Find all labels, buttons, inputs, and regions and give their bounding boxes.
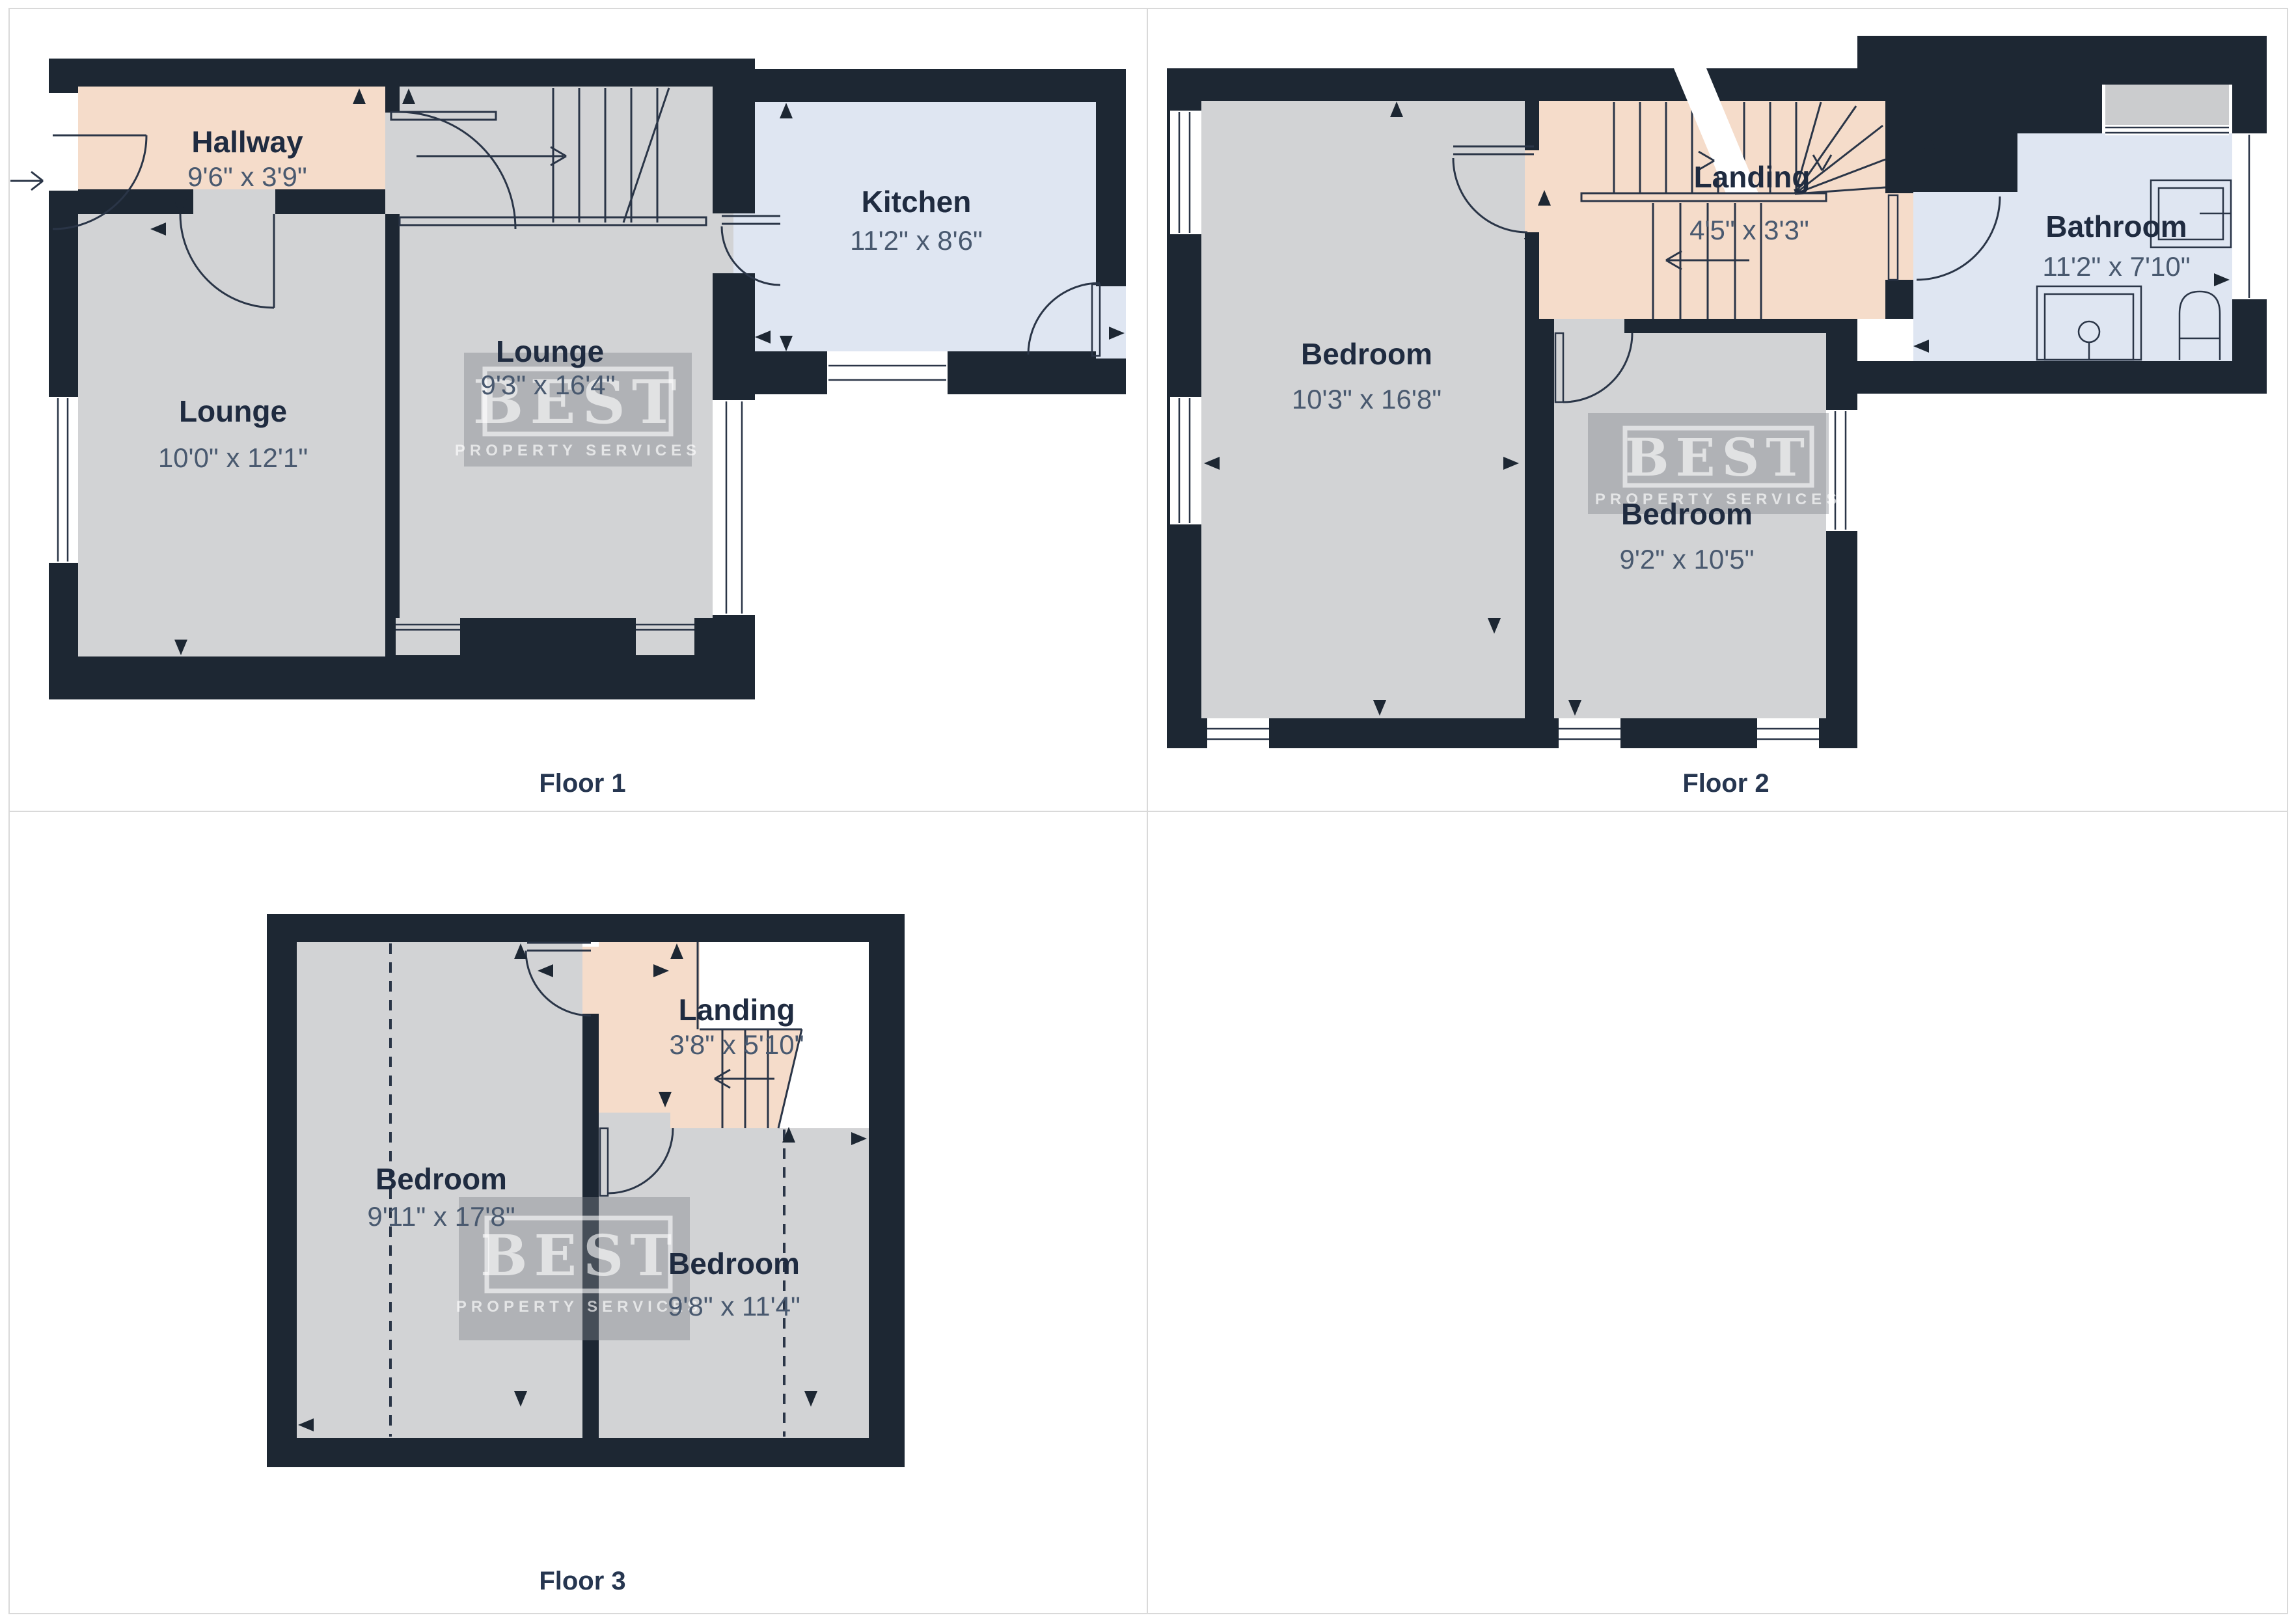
watermark-subtitle: PROPERTY SERVICES [456, 1298, 702, 1316]
room-label: Landing [679, 993, 795, 1027]
watermark-title: BEST [1625, 427, 1811, 488]
bay-window [396, 618, 460, 655]
caption-floor-3: Floor 3 [498, 1567, 667, 1596]
watermark-title: BEST [480, 1223, 678, 1289]
window [1170, 111, 1201, 234]
room-dimensions: 10'0" x 12'1" [158, 442, 308, 473]
room-label: Hallway [191, 125, 303, 159]
room-label: Lounge [496, 334, 604, 368]
caption-floor-1: Floor 1 [498, 769, 667, 798]
window [1757, 718, 1819, 748]
floorplan-floor-1: BEST PROPERTY SERVICES Hallway 9'6" x 3'… [0, 8, 1147, 811]
room-label: Bedroom [1621, 497, 1753, 531]
room-dimensions: 9'6" x 3'9" [187, 161, 307, 192]
window [1826, 410, 1857, 531]
room-dimensions: 11'2" x 8'6" [850, 225, 983, 256]
room-dimensions: 9'2" x 10'5" [1620, 544, 1755, 575]
watermark-subtitle: PROPERTY SERVICES [455, 442, 701, 459]
floorplan-floor-3: BEST PROPERTY SERVICES Bedroom 9'11" x 1… [0, 811, 1147, 1614]
front-door-opening [49, 93, 78, 191]
entry-arrow [10, 172, 43, 190]
window [827, 351, 948, 394]
room-label: Lounge [179, 394, 287, 428]
room-lounge-left [78, 214, 385, 656]
room-label: Bedroom [1301, 337, 1432, 371]
window [713, 400, 755, 615]
room-label: Bedroom [668, 1247, 800, 1280]
room-dimensions: 9'3" x 16'4" [481, 370, 616, 400]
room-label: Bedroom [376, 1162, 507, 1196]
window [2105, 125, 2229, 135]
room-dimensions: 10'3" x 16'8" [1292, 384, 1442, 414]
cupboard-block [2105, 85, 2229, 128]
room-dimensions: 11'2" x 7'10" [2042, 251, 2190, 282]
caption-floor-2: Floor 2 [1641, 769, 1811, 798]
floorplan-floor-2: BEST PROPERTY SERVICES Bedroom 10'3" x 1… [1147, 8, 2296, 811]
window [1559, 718, 1620, 748]
room-dimensions: 9'11" x 17'8" [367, 1201, 515, 1232]
window [1170, 397, 1201, 524]
room-dimensions: 3'8" x 5'10" [670, 1029, 804, 1060]
bay-window [636, 618, 694, 655]
room-label: Landing [1694, 160, 1811, 194]
room-label: Kitchen [862, 185, 972, 219]
window [49, 397, 78, 563]
room-dimensions: 4'5" x 3'3" [1689, 215, 1809, 245]
room-dimensions: 9'8" x 11'4" [668, 1291, 800, 1321]
room-label: Bathroom [2045, 210, 2187, 243]
window [1207, 718, 1269, 748]
